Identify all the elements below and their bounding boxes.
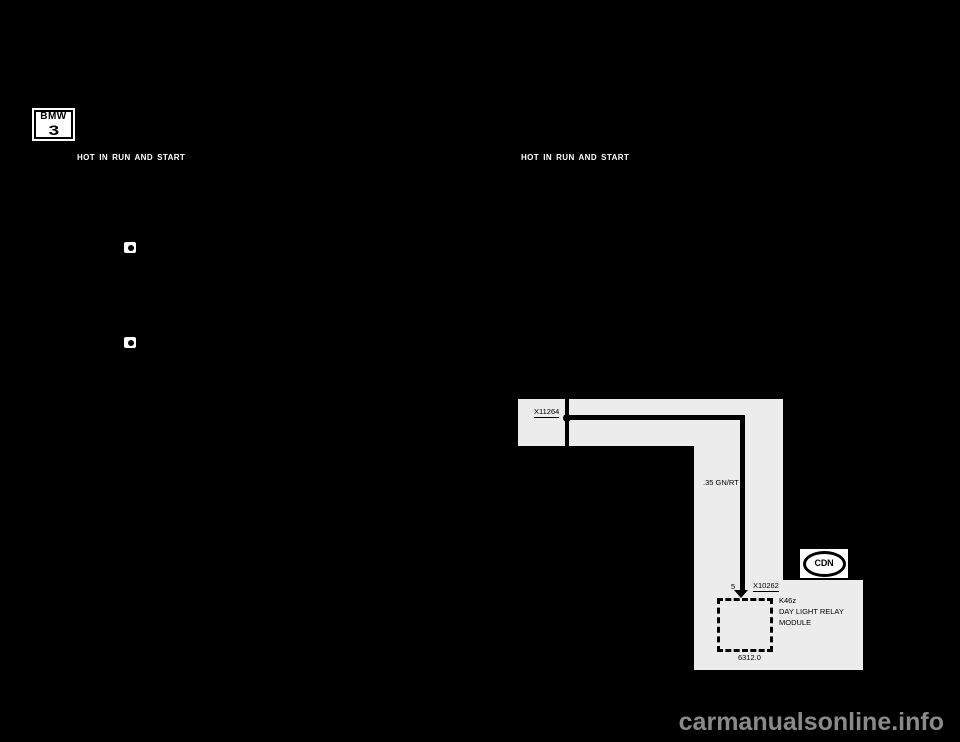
- cdn-badge-text: CDN: [815, 559, 834, 568]
- bmw-series-number: 3: [48, 123, 59, 137]
- connector-boundary-line: [565, 399, 569, 446]
- bmw-brand-text: BMW: [40, 112, 67, 122]
- watermark: carmanualsonline.info: [679, 710, 944, 735]
- wire-vertical-run: [740, 415, 745, 590]
- bmw-series-badge: BMW 3: [32, 108, 75, 141]
- page-reference-icon: [124, 337, 136, 348]
- wire-horizontal-run: [567, 415, 745, 420]
- circuit-reference-label: 6312.0: [738, 654, 761, 662]
- splice-label-x11264: X11264: [534, 408, 559, 418]
- page-reference-icon-dot: [128, 245, 134, 251]
- daylight-relay-module-box: [717, 598, 773, 652]
- hot-in-run-start-label-right: HOT IN RUN AND START: [521, 154, 629, 162]
- hot-in-run-start-label-left: HOT IN RUN AND START: [77, 154, 185, 162]
- module-name-line2: MODULE: [779, 619, 811, 627]
- module-name-line1: DAY LIGHT RELAY: [779, 608, 844, 616]
- connector-label-x10262: X10262: [753, 582, 779, 592]
- pin-number-label: 5: [731, 583, 735, 591]
- wire-arrowhead-icon: [734, 590, 748, 598]
- page-reference-icon-dot: [128, 340, 134, 346]
- manual-page: { "page": { "background": "#000000", "wa…: [0, 0, 960, 742]
- cdn-market-badge: CDN: [800, 549, 848, 578]
- diagram-background-column: [694, 446, 783, 580]
- wire-gauge-color-label: .35 GN/RT: [703, 479, 739, 487]
- module-code-label: K46z: [779, 597, 796, 605]
- cdn-oval-outline: CDN: [803, 551, 846, 577]
- page-reference-icon: [124, 242, 136, 253]
- bmw-series-badge-frame: BMW 3: [34, 110, 73, 139]
